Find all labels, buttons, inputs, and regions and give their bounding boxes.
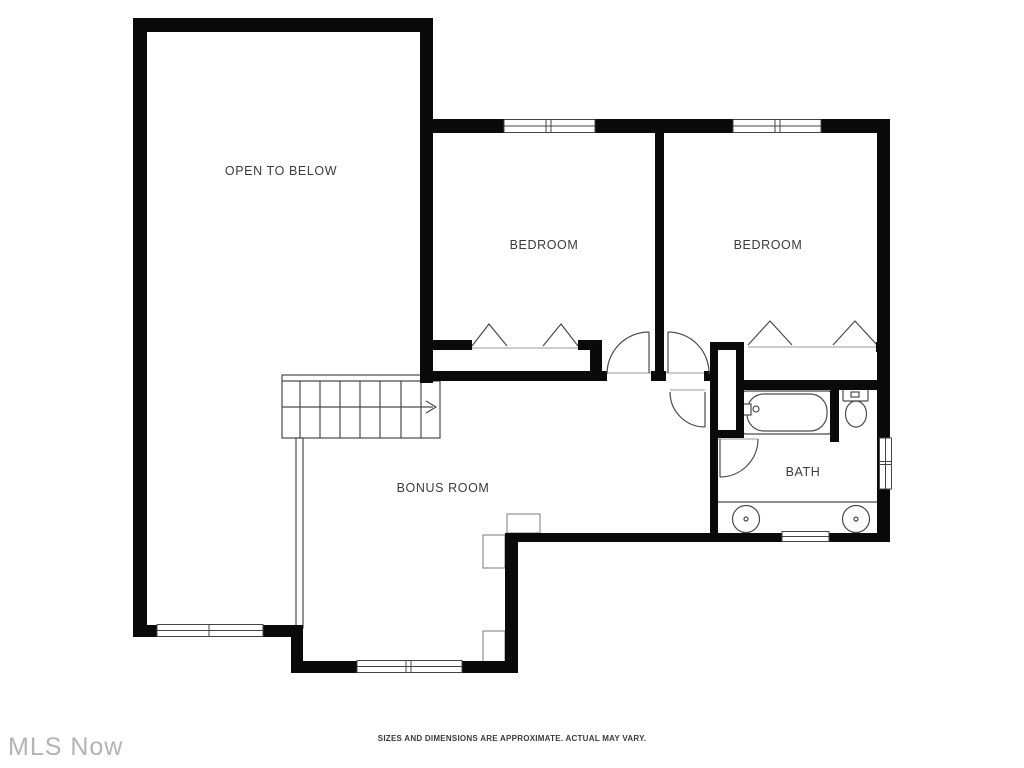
- door-swing-icon: [718, 439, 758, 477]
- room-label-bedroom-2: BEDROOM: [734, 238, 803, 252]
- vanity-counter: [718, 502, 877, 533]
- room-label-bedroom-1: BEDROOM: [510, 238, 579, 252]
- window-icon: [880, 438, 892, 489]
- door-swing-icon: [666, 332, 709, 374]
- floor-plan-drawing: [0, 0, 1024, 768]
- stairs-icon: [282, 375, 440, 438]
- floor-plan-page: OPEN TO BELOW BEDROOM BEDROOM BONUS ROOM…: [0, 0, 1024, 768]
- bifold-closet-door-icon: [472, 324, 578, 348]
- window-icon: [733, 120, 821, 133]
- window-icon: [357, 661, 462, 673]
- window-icon: [782, 532, 829, 542]
- sink-icon: [733, 506, 760, 534]
- window-icon: [504, 120, 595, 133]
- sink-icon: [843, 506, 870, 534]
- room-label-bonus-room: BONUS ROOM: [397, 481, 490, 495]
- room-label-bath: BATH: [786, 465, 821, 479]
- bifold-closet-door-icon: [748, 321, 877, 347]
- chase-icon: [710, 342, 744, 438]
- door-swing-icon: [607, 332, 651, 374]
- walls: [133, 18, 890, 673]
- toilet-icon: [843, 389, 868, 427]
- window-icon: [157, 625, 263, 637]
- disclaimer-text: SIZES AND DIMENSIONS ARE APPROXIMATE. AC…: [0, 734, 1024, 743]
- railing-icon: [296, 438, 303, 628]
- room-label-open-to-below: OPEN TO BELOW: [225, 164, 337, 178]
- door-swing-icon: [670, 390, 705, 427]
- bathtub-icon: [741, 391, 832, 434]
